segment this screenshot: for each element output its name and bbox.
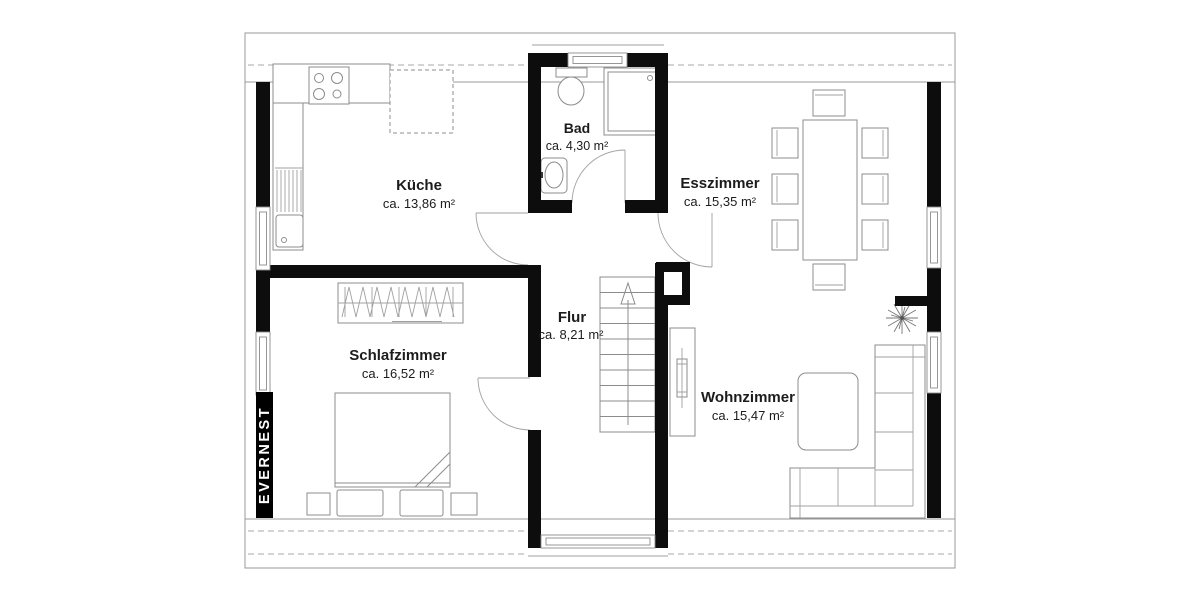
label-wohnzimmer: Wohnzimmer	[701, 389, 795, 406]
door-kitchen	[476, 213, 528, 265]
coffee-table-icon	[798, 373, 858, 450]
label-bad: Bad	[564, 120, 590, 136]
area-bad: ca. 4,30 m²	[546, 139, 609, 153]
area-schlafzimmer: ca. 16,52 m²	[362, 366, 435, 381]
wardrobe-icon	[338, 283, 463, 323]
toilet-icon	[556, 68, 587, 105]
plant-icon	[886, 302, 918, 334]
window-bedroom	[256, 332, 270, 395]
window-kitchen	[256, 207, 270, 270]
label-flur: Flur	[558, 309, 586, 326]
nightstand-left-icon	[307, 493, 330, 515]
shower-icon	[604, 68, 660, 135]
door-dining	[658, 213, 712, 267]
kitchen-sink-icon	[276, 215, 303, 247]
label-kueche: Küche	[396, 177, 442, 194]
floor-plan-page: Küche ca. 13,86 m² Bad ca. 4,30 m² Esszi…	[0, 0, 1200, 600]
watermark-text: EVERNEST	[257, 406, 273, 504]
area-wohnzimmer: ca. 15,47 m²	[712, 408, 785, 423]
stairs-icon	[600, 277, 655, 432]
bed-pillow-right-icon	[400, 490, 443, 516]
label-schlafzimmer: Schlafzimmer	[349, 347, 447, 364]
door-bedroom	[478, 378, 530, 430]
nightstand-right-icon	[451, 493, 477, 515]
floor-plan: Küche ca. 13,86 m² Bad ca. 4,30 m² Esszi…	[0, 0, 1200, 600]
bath-sink-icon	[537, 158, 567, 193]
window-hall	[541, 535, 655, 548]
watermark: EVERNEST	[256, 392, 273, 518]
dining-table-icon	[803, 120, 857, 260]
area-flur: ca. 8,21 m²	[538, 327, 604, 342]
bed-icon	[335, 393, 450, 487]
window-bath	[568, 53, 627, 67]
bed-pillow-left-icon	[337, 490, 383, 516]
label-esszimmer: Esszimmer	[680, 175, 759, 192]
door-bath	[572, 150, 625, 203]
kitchen-island-dashed-icon	[390, 70, 453, 133]
chimney-icon	[656, 262, 690, 305]
stove-icon	[309, 67, 349, 104]
area-kueche: ca. 13,86 m²	[383, 196, 456, 211]
window-dining	[927, 207, 941, 268]
window-living	[927, 332, 941, 393]
area-esszimmer: ca. 15,35 m²	[684, 194, 757, 209]
